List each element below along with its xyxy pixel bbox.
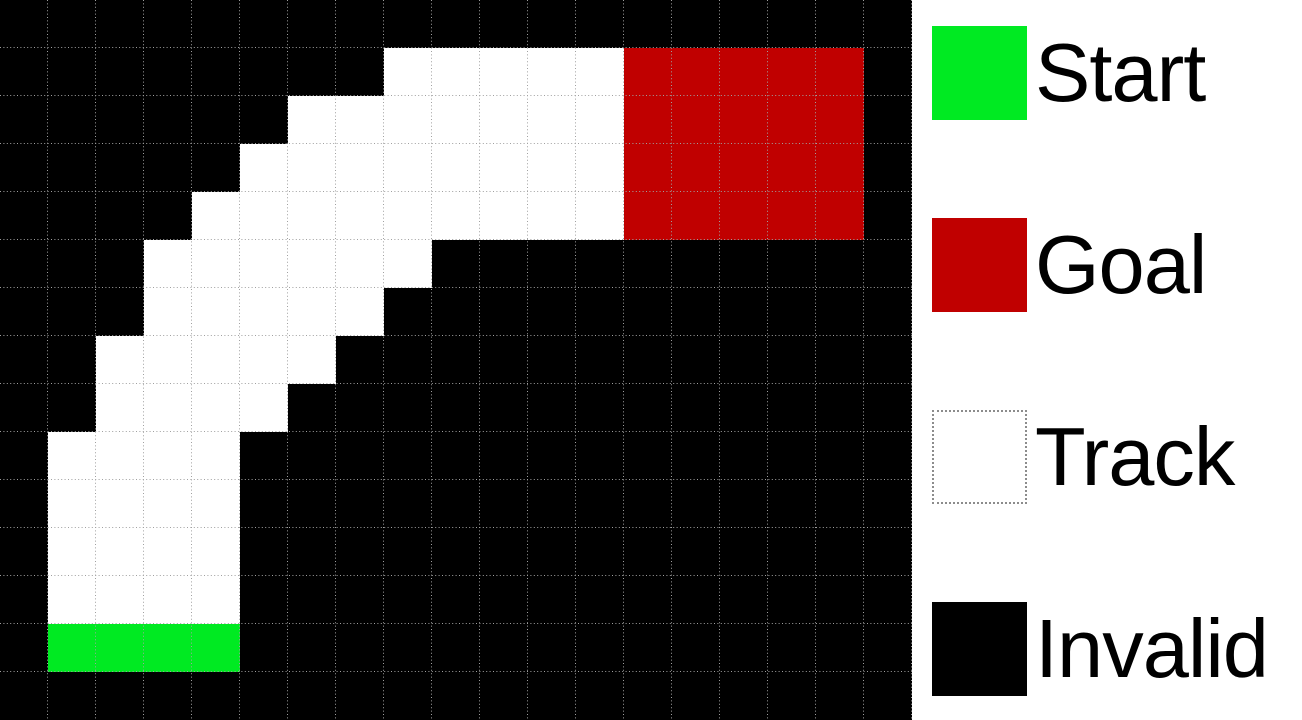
grid-cell-track (384, 192, 432, 240)
grid-cell-invalid (624, 528, 672, 576)
grid-cell-invalid (192, 672, 240, 720)
grid-cell-start (96, 624, 144, 672)
grid-cell-track (576, 192, 624, 240)
grid-cell-invalid (528, 624, 576, 672)
grid-cell-invalid (0, 528, 48, 576)
grid-cell-track (96, 480, 144, 528)
grid-cell-invalid (768, 528, 816, 576)
grid-cell-invalid (0, 624, 48, 672)
grid-cell-invalid (336, 480, 384, 528)
grid-cell-invalid (384, 288, 432, 336)
grid-cell-invalid (576, 288, 624, 336)
grid-cell-invalid (48, 48, 96, 96)
grid-cell-invalid (432, 480, 480, 528)
grid-cell-invalid (864, 192, 912, 240)
grid-cell-track (528, 144, 576, 192)
grid-cell-invalid (576, 672, 624, 720)
grid-cell-invalid (528, 240, 576, 288)
legend-label-goal: Goal (1035, 223, 1206, 306)
grid-cell-track (336, 240, 384, 288)
grid-cell-track (336, 144, 384, 192)
grid-cell-invalid (864, 336, 912, 384)
grid-cell-invalid (864, 624, 912, 672)
grid-cell-track (240, 288, 288, 336)
grid-cell-invalid (288, 672, 336, 720)
grid-cell-invalid (576, 624, 624, 672)
grid-cell-goal (816, 48, 864, 96)
grid-cell-invalid (288, 0, 336, 48)
grid-cell-invalid (768, 288, 816, 336)
grid-cell-track (192, 528, 240, 576)
grid-cell-invalid (192, 48, 240, 96)
grid-cell-track (192, 384, 240, 432)
grid-cell-track (48, 432, 96, 480)
grid-cell-invalid (240, 0, 288, 48)
grid-cell-invalid (432, 624, 480, 672)
grid-cell-goal (768, 192, 816, 240)
grid-cell-invalid (672, 432, 720, 480)
grid-cell-goal (624, 96, 672, 144)
grid-cell-invalid (816, 0, 864, 48)
grid-cell-track (480, 48, 528, 96)
grid-cell-invalid (240, 624, 288, 672)
grid-cell-track (144, 432, 192, 480)
grid-cell-invalid (624, 672, 672, 720)
grid-cell-invalid (480, 240, 528, 288)
grid-cell-invalid (0, 576, 48, 624)
grid-cell-invalid (480, 384, 528, 432)
grid-cell-invalid (768, 576, 816, 624)
grid-cell-invalid (384, 432, 432, 480)
grid-cell-invalid (0, 672, 48, 720)
grid-cell-track (192, 576, 240, 624)
grid-cell-track (48, 528, 96, 576)
legend-item-goal: Goal (932, 217, 1206, 312)
grid-cell-track (144, 336, 192, 384)
grid-cell-track (528, 192, 576, 240)
grid-cell-invalid (624, 288, 672, 336)
grid-cell-track (528, 48, 576, 96)
grid-cell-invalid (384, 336, 432, 384)
grid-cell-invalid (0, 480, 48, 528)
grid-cell-invalid (576, 384, 624, 432)
grid-cell-invalid (576, 336, 624, 384)
grid-cell-invalid (672, 240, 720, 288)
grid-cell-invalid (432, 672, 480, 720)
grid-cell-goal (672, 144, 720, 192)
grid-cell-invalid (384, 384, 432, 432)
grid-cell-start (48, 624, 96, 672)
grid-cell-invalid (864, 672, 912, 720)
grid-cell-invalid (768, 336, 816, 384)
grid-cell-invalid (432, 336, 480, 384)
grid-cell-invalid (480, 624, 528, 672)
grid-cell-invalid (0, 336, 48, 384)
grid-cell-invalid (48, 96, 96, 144)
grid-cell-invalid (144, 96, 192, 144)
grid-cell-track (96, 432, 144, 480)
grid-cell-invalid (720, 480, 768, 528)
grid-cell-track (144, 576, 192, 624)
grid-cell-track (432, 144, 480, 192)
grid-cell-track (576, 48, 624, 96)
grid-cell-invalid (672, 528, 720, 576)
grid-cell-invalid (288, 480, 336, 528)
grid-cell-track (192, 336, 240, 384)
grid-cell-track (288, 240, 336, 288)
grid-cell-invalid (768, 240, 816, 288)
grid-cell-track (336, 288, 384, 336)
grid-cell-invalid (528, 432, 576, 480)
grid-cell-invalid (288, 576, 336, 624)
grid-cell-invalid (384, 624, 432, 672)
grid-cell-invalid (624, 240, 672, 288)
grid-cell-track (240, 144, 288, 192)
goal-swatch (932, 218, 1027, 312)
grid-cell-track (576, 96, 624, 144)
legend-label-start: Start (1035, 31, 1205, 114)
grid-cell-invalid (48, 144, 96, 192)
grid-cell-track (192, 480, 240, 528)
grid-cell-invalid (816, 576, 864, 624)
grid-cell-invalid (720, 432, 768, 480)
grid-cell-invalid (768, 384, 816, 432)
grid-cell-track (432, 48, 480, 96)
grid-cell-invalid (192, 96, 240, 144)
grid-cell-invalid (432, 576, 480, 624)
grid-cell-invalid (768, 480, 816, 528)
grid-cell-invalid (0, 240, 48, 288)
grid-cell-invalid (768, 672, 816, 720)
grid-cell-goal (624, 144, 672, 192)
grid-cell-invalid (0, 192, 48, 240)
grid-cell-invalid (240, 672, 288, 720)
grid-cell-invalid (624, 624, 672, 672)
grid-cell-invalid (720, 576, 768, 624)
grid-cell-invalid (672, 624, 720, 672)
grid-cell-invalid (720, 384, 768, 432)
grid-cell-invalid (864, 144, 912, 192)
grid-cell-invalid (816, 336, 864, 384)
grid-cell-invalid (768, 432, 816, 480)
grid-cell-invalid (432, 432, 480, 480)
grid-cell-invalid (672, 288, 720, 336)
grid-cell-invalid (816, 432, 864, 480)
grid-cell-track (288, 144, 336, 192)
grid-cell-track (432, 96, 480, 144)
grid-cell-track (48, 576, 96, 624)
grid-cell-invalid (720, 288, 768, 336)
grid-cell-invalid (864, 480, 912, 528)
grid-cell-track (240, 384, 288, 432)
grid-cell-invalid (528, 672, 576, 720)
grid-cell-track (144, 240, 192, 288)
grid-cell-invalid (576, 432, 624, 480)
racetrack-figure: Start Goal Track Invalid (0, 0, 1302, 720)
grid-cell-invalid (480, 528, 528, 576)
grid-cell-track (528, 96, 576, 144)
grid-cell-invalid (528, 288, 576, 336)
grid-cell-invalid (672, 0, 720, 48)
grid-cell-invalid (288, 384, 336, 432)
grid-cell-goal (624, 192, 672, 240)
grid-cell-track (432, 192, 480, 240)
grid-cell-track (96, 576, 144, 624)
grid-cell-invalid (432, 288, 480, 336)
grid-cell-track (384, 240, 432, 288)
grid-cell-invalid (240, 48, 288, 96)
grid-cell-invalid (528, 384, 576, 432)
grid-cell-invalid (336, 432, 384, 480)
grid-cell-invalid (336, 576, 384, 624)
grid-cell-invalid (96, 240, 144, 288)
grid-cell-goal (816, 96, 864, 144)
grid-cell-invalid (528, 0, 576, 48)
grid-cell-track (192, 192, 240, 240)
grid-cell-invalid (672, 384, 720, 432)
grid-cell-track (288, 96, 336, 144)
grid-cell-invalid (864, 288, 912, 336)
grid-cell-invalid (432, 0, 480, 48)
grid-cell-track (96, 528, 144, 576)
grid-cell-goal (816, 144, 864, 192)
grid-cell-track (336, 96, 384, 144)
grid-cell-invalid (144, 48, 192, 96)
grid-cell-invalid (0, 144, 48, 192)
grid-cell-invalid (864, 48, 912, 96)
grid-cell-invalid (816, 528, 864, 576)
legend-panel: Start Goal Track Invalid (912, 0, 1302, 720)
grid-cell-invalid (864, 96, 912, 144)
grid-cell-invalid (768, 624, 816, 672)
grid-cell-invalid (96, 192, 144, 240)
grid-cell-invalid (528, 528, 576, 576)
grid-cell-invalid (816, 624, 864, 672)
grid-cell-invalid (480, 288, 528, 336)
grid-cell-invalid (96, 96, 144, 144)
grid-cell-invalid (672, 576, 720, 624)
grid-cell-goal (768, 96, 816, 144)
grid-cell-goal (768, 48, 816, 96)
grid-cell-track (240, 192, 288, 240)
grid-cell-invalid (96, 288, 144, 336)
grid-cell-invalid (672, 336, 720, 384)
grid-cell-track (384, 144, 432, 192)
grid-cell-invalid (864, 432, 912, 480)
grid-cell-invalid (96, 672, 144, 720)
grid-cell-invalid (0, 288, 48, 336)
invalid-swatch (932, 602, 1027, 696)
grid-cell-invalid (864, 576, 912, 624)
grid-cell-track (384, 48, 432, 96)
grid-cell-invalid (816, 288, 864, 336)
grid-cell-invalid (576, 240, 624, 288)
legend-item-invalid: Invalid (932, 601, 1268, 696)
grid-cell-invalid (576, 0, 624, 48)
grid-cell-invalid (288, 432, 336, 480)
grid-cell-invalid (528, 576, 576, 624)
grid-cell-invalid (528, 336, 576, 384)
track-grid (0, 0, 912, 720)
grid-cell-invalid (240, 96, 288, 144)
grid-cell-invalid (624, 336, 672, 384)
grid-cell-track (144, 288, 192, 336)
legend-item-track: Track (932, 409, 1234, 504)
grid-cell-invalid (384, 528, 432, 576)
grid-cell-invalid (144, 0, 192, 48)
grid-cell-invalid (336, 528, 384, 576)
grid-cell-track (480, 96, 528, 144)
grid-cell-invalid (432, 384, 480, 432)
grid-cell-track (288, 192, 336, 240)
grid-cell-invalid (864, 0, 912, 48)
grid-cell-invalid (48, 0, 96, 48)
grid-cell-invalid (96, 0, 144, 48)
grid-cell-invalid (0, 384, 48, 432)
grid-cell-track (144, 528, 192, 576)
grid-cell-invalid (0, 432, 48, 480)
grid-cell-invalid (336, 336, 384, 384)
grid-cell-invalid (336, 672, 384, 720)
grid-cell-goal (720, 192, 768, 240)
legend-item-start: Start (932, 25, 1205, 120)
grid-cell-start (192, 624, 240, 672)
grid-cell-goal (816, 192, 864, 240)
grid-cell-invalid (816, 672, 864, 720)
grid-cell-invalid (480, 0, 528, 48)
grid-cell-track (240, 240, 288, 288)
grid-cell-invalid (240, 528, 288, 576)
grid-cell-track (288, 288, 336, 336)
grid-cell-invalid (864, 240, 912, 288)
grid-cell-track (288, 336, 336, 384)
grid-cell-track (240, 336, 288, 384)
grid-cell-track (384, 96, 432, 144)
grid-cell-invalid (528, 480, 576, 528)
grid-cell-invalid (432, 240, 480, 288)
grid-cell-track (480, 192, 528, 240)
grid-cell-invalid (576, 480, 624, 528)
grid-cell-track (96, 336, 144, 384)
grid-cell-invalid (768, 0, 816, 48)
grid-cell-track (144, 384, 192, 432)
grid-cell-invalid (240, 480, 288, 528)
grid-cell-invalid (864, 528, 912, 576)
grid-cell-invalid (480, 576, 528, 624)
grid-cell-invalid (720, 0, 768, 48)
grid-cell-invalid (576, 528, 624, 576)
grid-cell-invalid (384, 480, 432, 528)
grid-cell-invalid (624, 576, 672, 624)
grid-cell-invalid (816, 240, 864, 288)
grid-cell-invalid (816, 480, 864, 528)
grid-cell-invalid (240, 432, 288, 480)
grid-cell-invalid (384, 0, 432, 48)
grid-cell-invalid (144, 672, 192, 720)
grid-cell-invalid (672, 672, 720, 720)
grid-cell-invalid (480, 336, 528, 384)
grid-cell-invalid (720, 240, 768, 288)
grid-cell-invalid (624, 480, 672, 528)
grid-cell-invalid (288, 48, 336, 96)
grid-cell-invalid (816, 384, 864, 432)
grid-cell-invalid (144, 192, 192, 240)
start-swatch (932, 26, 1027, 120)
grid-cell-invalid (480, 672, 528, 720)
grid-cell-invalid (288, 528, 336, 576)
grid-cell-invalid (864, 384, 912, 432)
grid-cell-goal (624, 48, 672, 96)
grid-cell-invalid (288, 624, 336, 672)
grid-cell-goal (720, 96, 768, 144)
grid-cell-goal (672, 48, 720, 96)
grid-cell-track (48, 480, 96, 528)
grid-cell-goal (720, 48, 768, 96)
grid-cell-goal (768, 144, 816, 192)
legend-label-track: Track (1035, 415, 1234, 498)
grid-cell-invalid (624, 0, 672, 48)
grid-cell-goal (720, 144, 768, 192)
grid-cell-invalid (720, 336, 768, 384)
legend-label-invalid: Invalid (1035, 607, 1268, 690)
grid-cell-invalid (336, 624, 384, 672)
grid-cell-track (480, 144, 528, 192)
grid-cell-invalid (480, 480, 528, 528)
grid-cell-invalid (336, 48, 384, 96)
grid-cell-invalid (672, 480, 720, 528)
grid-cell-invalid (0, 48, 48, 96)
grid-cell-invalid (240, 576, 288, 624)
grid-cell-start (144, 624, 192, 672)
grid-cell-track (192, 240, 240, 288)
grid-cell-invalid (192, 144, 240, 192)
grid-cell-track (192, 288, 240, 336)
grid-cell-track (576, 144, 624, 192)
grid-cell-invalid (0, 0, 48, 48)
grid-cell-invalid (48, 384, 96, 432)
grid-cell-invalid (48, 672, 96, 720)
grid-cell-track (144, 480, 192, 528)
grid-cell-invalid (48, 192, 96, 240)
grid-cell-goal (672, 96, 720, 144)
grid-cell-invalid (384, 672, 432, 720)
grid-cell-invalid (336, 384, 384, 432)
grid-cell-invalid (0, 96, 48, 144)
grid-cell-invalid (720, 624, 768, 672)
grid-cell-track (336, 192, 384, 240)
grid-cell-invalid (192, 0, 240, 48)
grid-cell-invalid (624, 432, 672, 480)
grid-cell-invalid (48, 288, 96, 336)
grid-cell-invalid (48, 240, 96, 288)
grid-cell-invalid (336, 0, 384, 48)
grid-cell-goal (672, 192, 720, 240)
grid-cell-invalid (384, 576, 432, 624)
grid-cell-invalid (48, 336, 96, 384)
grid-cell-track (192, 432, 240, 480)
grid-cell-invalid (96, 144, 144, 192)
grid-cell-invalid (624, 384, 672, 432)
grid-cell-invalid (720, 672, 768, 720)
grid-cell-invalid (576, 576, 624, 624)
grid-cell-track (96, 384, 144, 432)
track-swatch (932, 410, 1027, 504)
grid-cell-invalid (432, 528, 480, 576)
grid-cell-invalid (480, 432, 528, 480)
grid-cell-invalid (720, 528, 768, 576)
grid-cell-invalid (96, 48, 144, 96)
grid-cell-invalid (144, 144, 192, 192)
